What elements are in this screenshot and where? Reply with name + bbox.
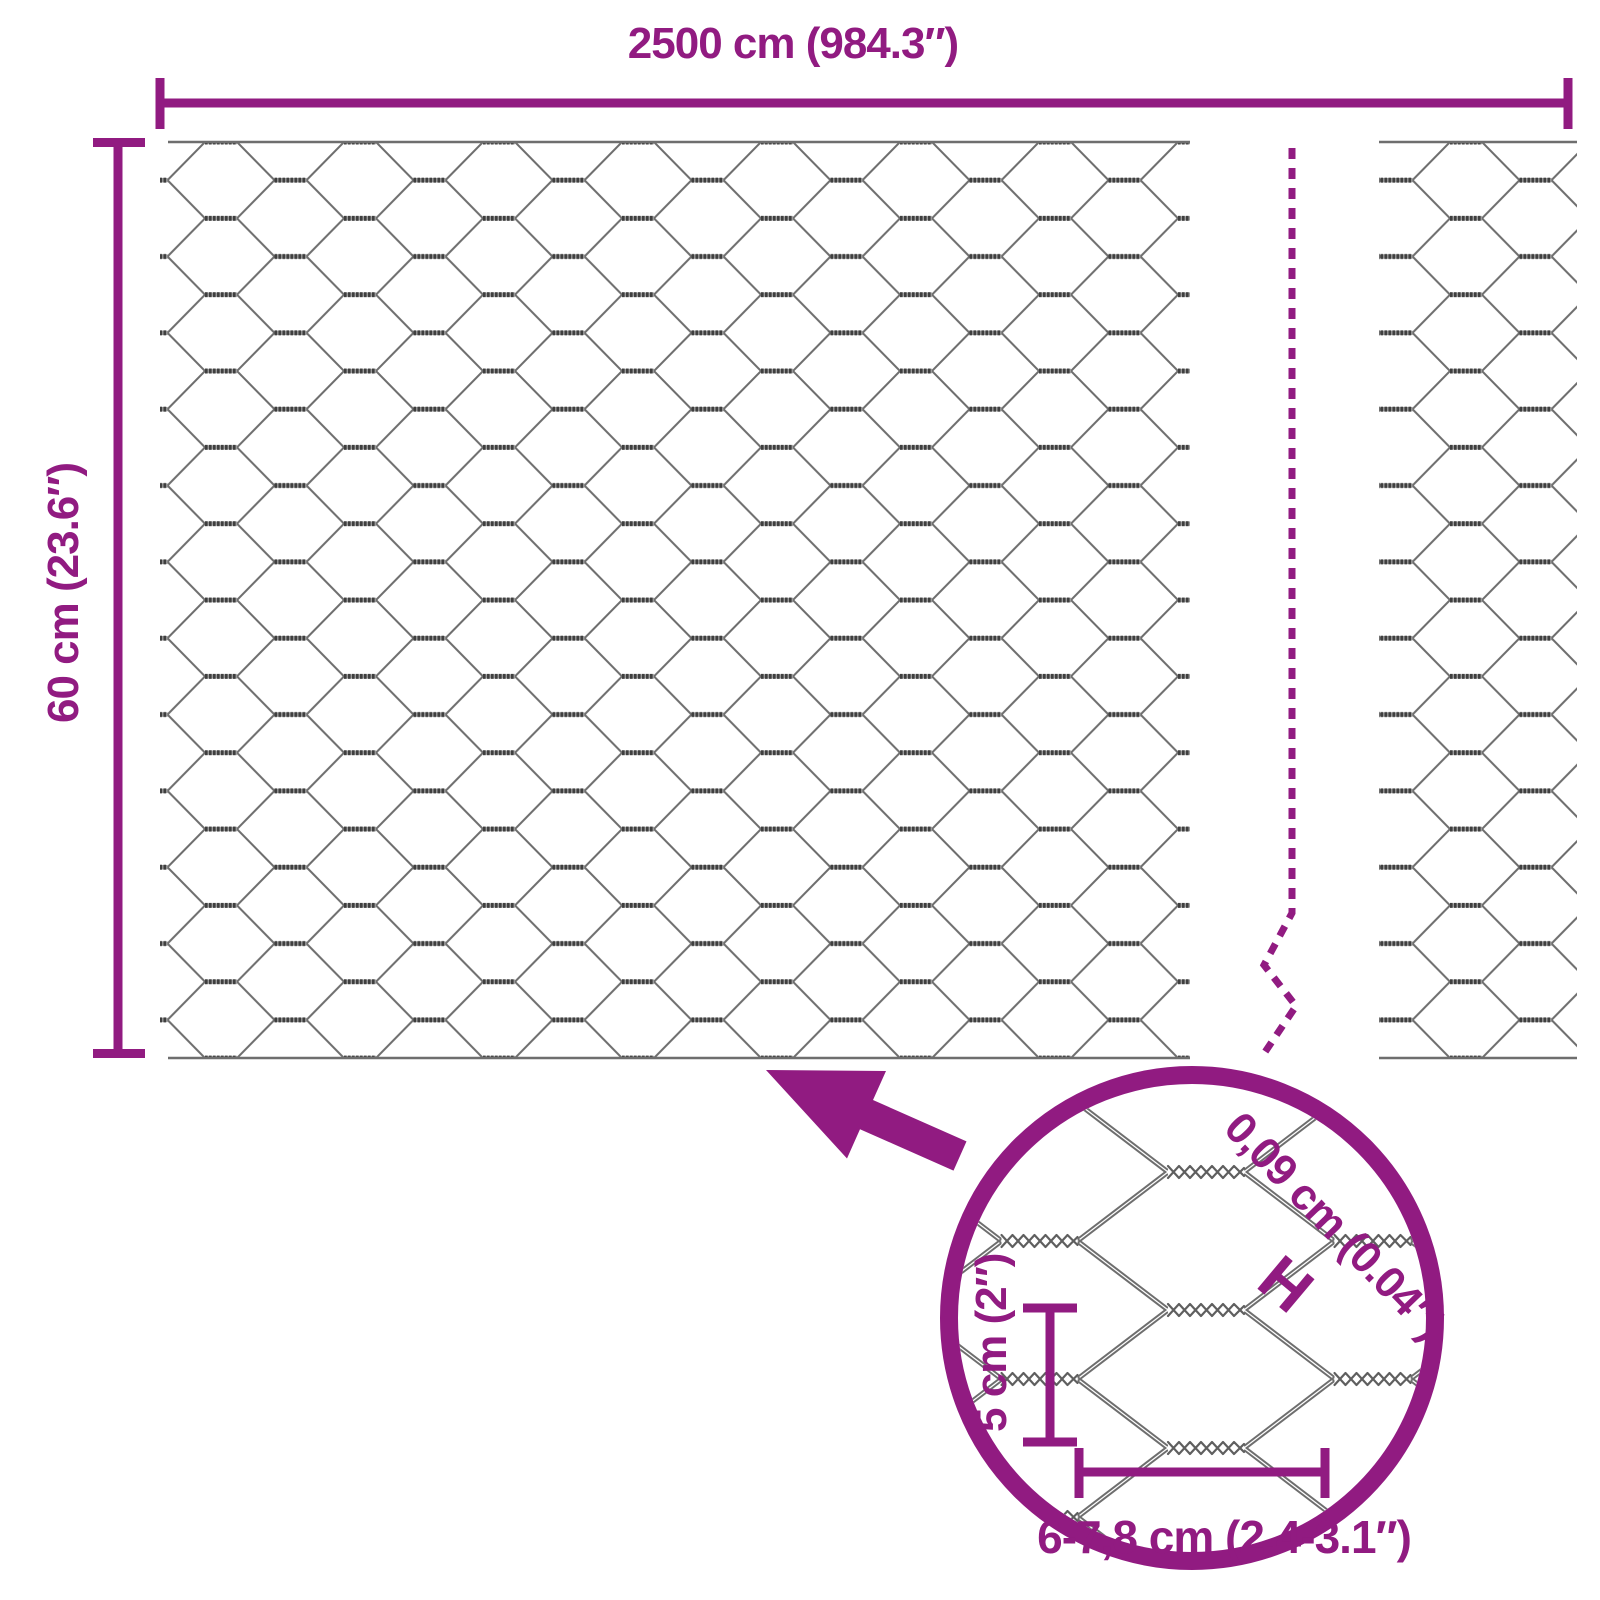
mesh-panel-continuation: [1379, 142, 1577, 1058]
total-width-label: 2500 cm (984.3″): [628, 19, 958, 68]
diagram-canvas: 2500 cm (984.3″) 60 cm (23.6″) 5 cm (2″)…: [0, 0, 1600, 1600]
mesh-cell-width-label: 6-7,8 cm (2.4-3.1″): [1037, 1511, 1411, 1563]
zoom-arrow-icon: [766, 1070, 967, 1171]
total-width-dimension: 2500 cm (984.3″): [160, 19, 1568, 129]
product-dimension-diagram: 2500 cm (984.3″) 60 cm (23.6″) 5 cm (2″)…: [0, 0, 1600, 1600]
detail-circle: 5 cm (2″) H 0,09 cm (0.04″) 6-7,8 cm (2.…: [940, 1070, 1455, 1570]
mesh-panel-main: [160, 142, 1190, 1058]
roll-height-dimension: 60 cm (23.6″): [39, 143, 145, 1054]
roll-height-label: 60 cm (23.6″): [39, 463, 88, 723]
length-break-dashed-line: [1261, 148, 1296, 1058]
